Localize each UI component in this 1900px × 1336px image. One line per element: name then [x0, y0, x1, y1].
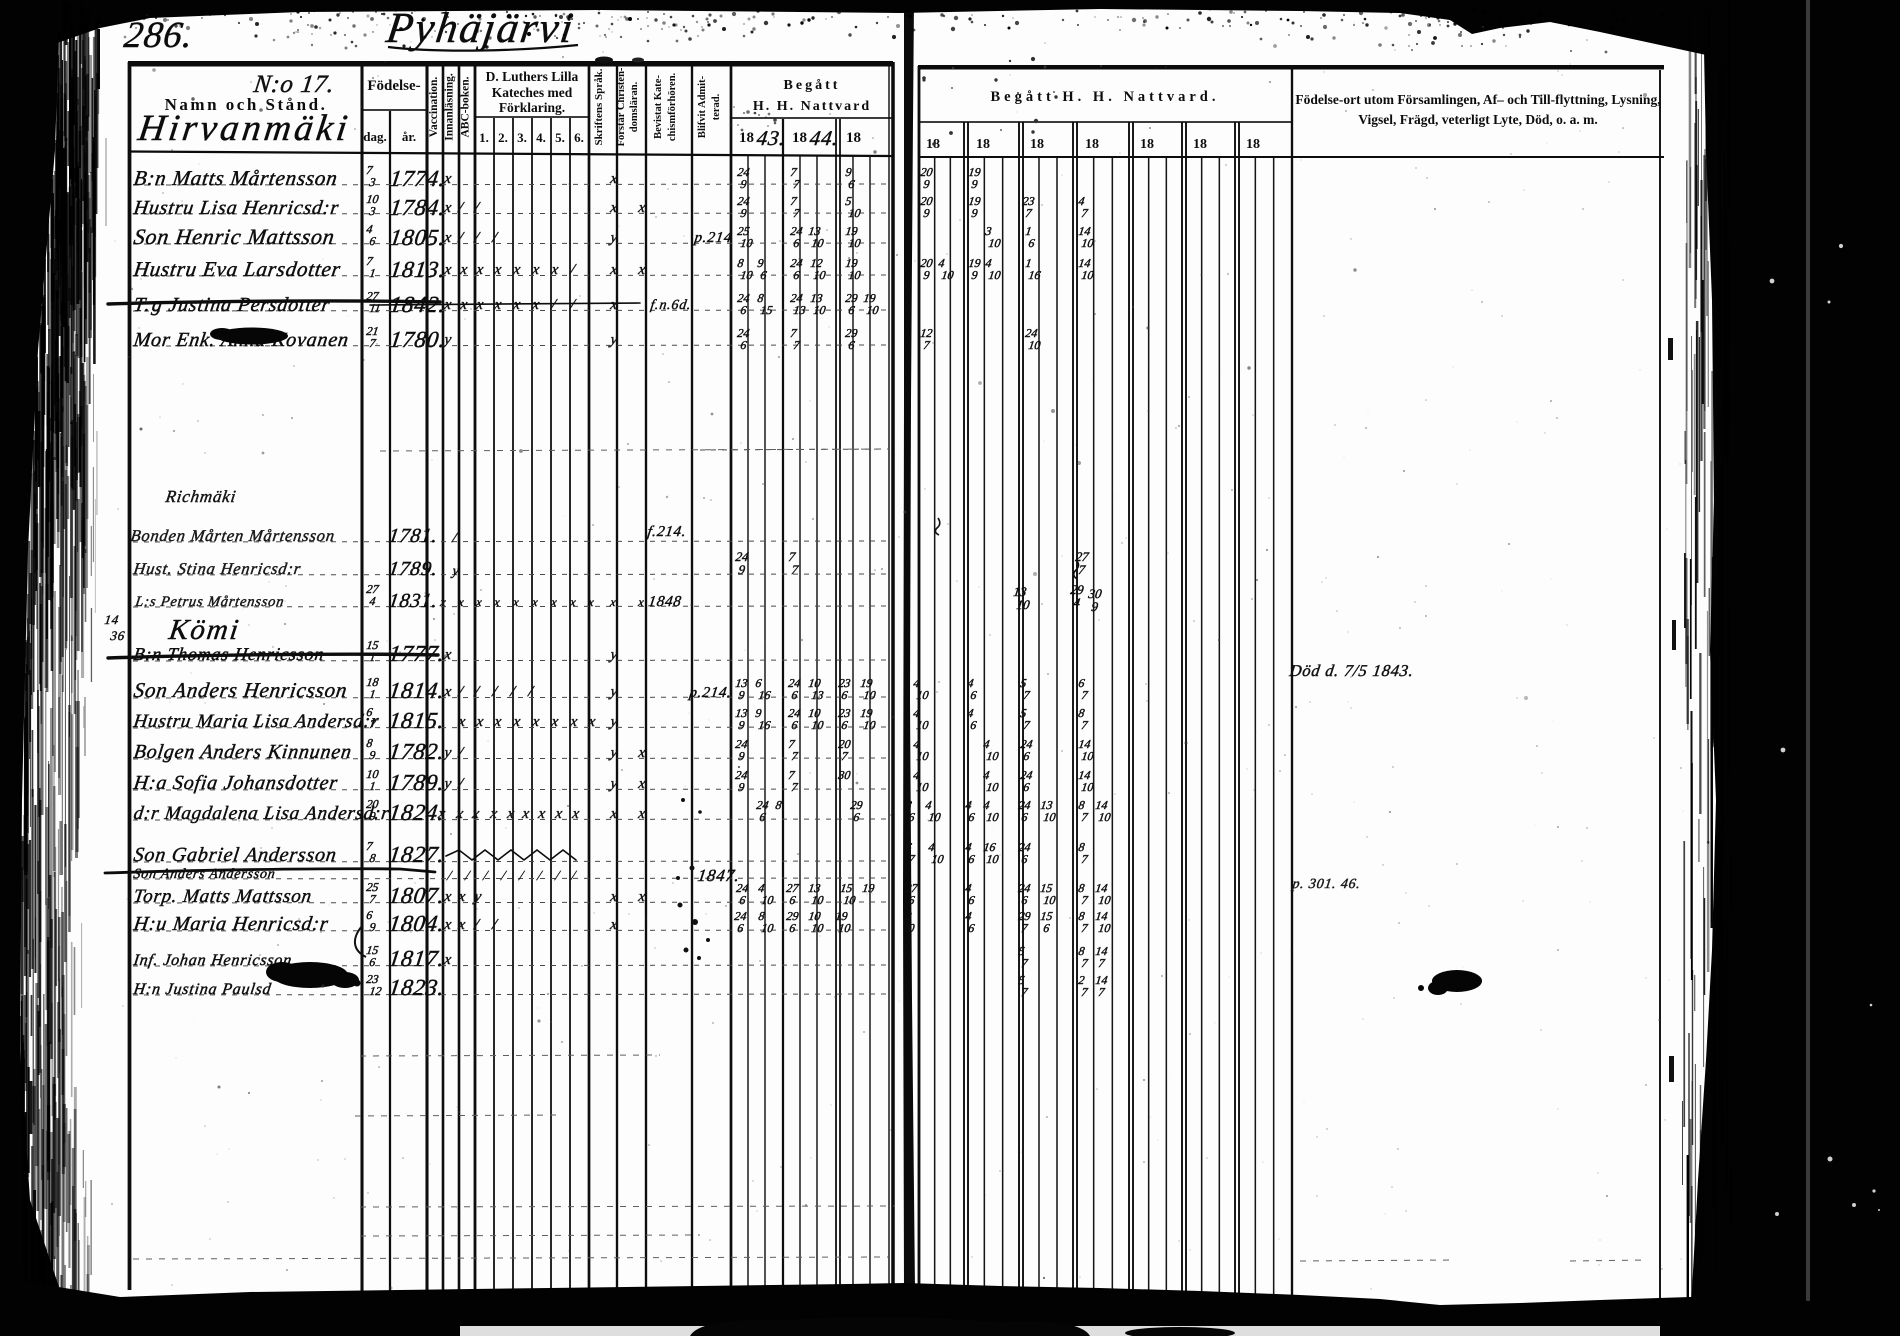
svg-text:10: 10	[941, 268, 955, 282]
svg-text:d:r Magdalena Lisa Andersd:r: d:r Magdalena Lisa Andersd:r	[132, 803, 391, 824]
svg-text:10: 10	[986, 852, 1000, 866]
svg-text:Bolgen Anders Kinnunen: Bolgen Anders Kinnunen	[132, 741, 353, 763]
svg-text:Hirvanmäki: Hirvanmäki	[135, 108, 353, 149]
svg-text:D. Luthers Lilla: D. Luthers Lilla	[486, 69, 579, 84]
svg-text:18: 18	[792, 130, 807, 146]
svg-text:H. H. Nattvard: H. H. Nattvard	[753, 99, 871, 114]
svg-text:18: 18	[976, 137, 990, 152]
svg-text:16: 16	[758, 688, 772, 702]
svg-text:1813.: 1813.	[388, 256, 447, 282]
svg-text:10: 10	[811, 893, 825, 907]
svg-text:10: 10	[928, 810, 942, 824]
svg-text:Skriftens Språk.: Skriftens Språk.	[593, 68, 605, 145]
svg-text:p.214.: p.214.	[687, 685, 733, 701]
svg-text:15: 15	[760, 303, 774, 317]
svg-text:f.214.: f.214.	[646, 524, 687, 540]
svg-text:10: 10	[931, 852, 945, 866]
svg-text:Hustru Maria Lisa Andersd:r: Hustru Maria Lisa Andersd:r	[131, 711, 380, 732]
svg-text:10: 10	[837, 921, 851, 935]
svg-text:H:n Justina Paulsd: H:n Justina Paulsd	[131, 981, 272, 998]
svg-text:16: 16	[758, 718, 772, 732]
svg-text:Kömi: Kömi	[166, 614, 242, 646]
svg-text:10: 10	[1028, 338, 1042, 352]
svg-text:19: 19	[862, 881, 876, 895]
svg-text:10: 10	[848, 206, 862, 220]
svg-text:10: 10	[810, 921, 824, 935]
svg-text:18: 18	[739, 130, 754, 146]
svg-text:4.: 4.	[536, 130, 546, 145]
svg-text:Bevistat Kate-: Bevistat Kate-	[653, 75, 664, 139]
svg-text:43.: 43.	[755, 126, 787, 150]
svg-text:18: 18	[846, 130, 861, 146]
svg-text:10: 10	[1081, 749, 1095, 763]
svg-text:14: 14	[104, 612, 121, 627]
svg-text:10: 10	[740, 268, 754, 282]
svg-text:Födelse-ort utom Församlingen,: Födelse-ort utom Församlingen, Af– och T…	[1295, 92, 1660, 107]
svg-text:11: 11	[369, 301, 382, 315]
svg-text:10: 10	[986, 749, 1000, 763]
svg-text:10: 10	[863, 688, 877, 702]
svg-text:16: 16	[1028, 268, 1042, 282]
svg-text:Son Anders Henricsson: Son Anders Henricsson	[132, 678, 349, 702]
svg-text:1815.: 1815.	[387, 707, 446, 733]
svg-text:10: 10	[843, 893, 857, 907]
svg-text:Hustru Lisa Henricsd:r: Hustru Lisa Henricsd:r	[131, 197, 340, 219]
svg-text:10: 10	[916, 688, 930, 702]
svg-text:1784.: 1784.	[388, 194, 447, 220]
svg-text:1817.: 1817.	[387, 945, 446, 971]
svg-text:10: 10	[1081, 236, 1095, 250]
svg-text:terad.: terad.	[711, 93, 722, 120]
svg-text:44.: 44.	[808, 126, 840, 150]
svg-text:18: 18	[1030, 137, 1044, 152]
svg-text:Richmäki: Richmäki	[163, 487, 237, 506]
svg-text:Vigsel, Frägd, veterligt Lyte,: Vigsel, Frägd, veterligt Lyte, Död, o. a…	[1358, 112, 1597, 127]
svg-text:1774.: 1774.	[388, 165, 447, 191]
svg-text:p.214: p.214	[692, 230, 733, 246]
svg-text:10: 10	[811, 236, 825, 250]
svg-text:H:u Maria Henricsd:r: H:u Maria Henricsd:r	[131, 913, 330, 935]
svg-text:10: 10	[1081, 780, 1095, 794]
svg-text:10: 10	[848, 268, 862, 282]
svg-text:10: 10	[813, 303, 827, 317]
svg-text:10: 10	[916, 749, 930, 763]
svg-text:10: 10	[1097, 921, 1111, 935]
svg-text:18: 18	[1085, 137, 1099, 152]
svg-text:Kateches med: Kateches med	[492, 85, 573, 100]
svg-text:10: 10	[1016, 597, 1032, 612]
svg-text:år.: år.	[402, 129, 416, 144]
svg-text:p. 301. 46.: p. 301. 46.	[1290, 876, 1361, 892]
svg-text:10: 10	[1098, 893, 1112, 907]
svg-text:10: 10	[866, 303, 880, 317]
svg-text:10: 10	[863, 718, 877, 732]
svg-text:1847.: 1847.	[696, 866, 741, 885]
svg-text:1831.: 1831.	[387, 590, 439, 612]
svg-text:10: 10	[813, 268, 827, 282]
svg-text:f.n.6d.: f.n.6d.	[649, 297, 692, 313]
svg-text:1848: 1848	[647, 594, 682, 610]
svg-text:1782.: 1782.	[387, 738, 446, 764]
svg-text:10: 10	[916, 780, 930, 794]
svg-text:1814.: 1814.	[387, 677, 446, 703]
svg-text:10: 10	[761, 893, 775, 907]
svg-text:Begått H. H. Nattvard.: Begått H. H. Nattvard.	[991, 89, 1220, 105]
svg-text:1.: 1.	[479, 130, 489, 145]
svg-text:1789.: 1789.	[387, 769, 446, 795]
svg-text:Vaccination.: Vaccination.	[428, 77, 440, 138]
svg-text:H:a Sofia Johansdotter: H:a Sofia Johansdotter	[131, 772, 339, 794]
svg-text:Torp. Matts Mattsson: Torp. Matts Mattsson	[132, 886, 313, 907]
svg-text:10: 10	[1081, 268, 1095, 282]
svg-text:12: 12	[369, 984, 383, 998]
svg-text:Innanläsning.: Innanläsning.	[444, 73, 456, 141]
svg-text:Födelse-: Födelse-	[367, 78, 420, 94]
svg-text:chismförhören.: chismförhören.	[667, 72, 678, 141]
svg-text:10: 10	[916, 718, 930, 732]
svg-text:1780.: 1780.	[388, 326, 447, 352]
svg-text:Hustru Eva Larsdotter: Hustru Eva Larsdotter	[131, 257, 342, 281]
svg-text:ABC-boken.: ABC-boken.	[460, 76, 472, 137]
svg-text:30: 30	[837, 768, 852, 782]
svg-text:10: 10	[1043, 810, 1057, 824]
svg-text:36: 36	[109, 628, 127, 643]
svg-text:10: 10	[1098, 810, 1112, 824]
svg-text:T:g Justina Persdotter: T:g Justina Persdotter	[132, 294, 331, 316]
svg-text:10: 10	[740, 236, 754, 250]
svg-text:1789.: 1789.	[387, 558, 439, 580]
svg-text:10: 10	[986, 810, 1000, 824]
svg-text:1823.: 1823.	[387, 974, 446, 1000]
svg-text:dag.: dag.	[363, 129, 386, 144]
svg-text:6.: 6.	[574, 130, 584, 145]
svg-text:Förstår Christen-: Förstår Christen-	[616, 67, 627, 146]
svg-text:1805.: 1805.	[388, 224, 447, 250]
svg-text:Hust. Stina Henricsd:r: Hust. Stina Henricsd:r	[131, 559, 302, 578]
svg-text:10: 10	[988, 268, 1002, 282]
svg-text:Son Henric Mattsson: Son Henric Mattsson	[132, 224, 336, 249]
svg-text:1807.: 1807.	[387, 882, 446, 908]
svg-text:domsläran.: domsläran.	[629, 81, 640, 132]
svg-text:10: 10	[760, 921, 774, 935]
svg-text:18: 18	[1140, 137, 1154, 152]
svg-text:10: 10	[986, 780, 1000, 794]
svg-text:Pyhäjärvi: Pyhäjärvi	[383, 4, 578, 52]
svg-text:13: 13	[811, 688, 825, 702]
svg-text:Förklaring.: Förklaring.	[499, 100, 565, 115]
svg-text:Son Gabriel Andersson: Son Gabriel Andersson	[132, 844, 338, 866]
svg-text:Begått: Begått	[784, 78, 841, 93]
svg-text:13: 13	[793, 303, 807, 317]
svg-text:10: 10	[988, 236, 1002, 250]
svg-text:1804.: 1804.	[387, 910, 446, 936]
svg-text:N:o 17.: N:o 17.	[251, 71, 336, 98]
svg-text:Bonden Mårten Mårtensson: Bonden Mårten Mårtensson	[129, 526, 336, 545]
svg-text:3.: 3.	[517, 130, 527, 145]
svg-text:1827.: 1827.	[387, 841, 446, 867]
svg-text:18: 18	[1193, 137, 1207, 152]
svg-text:2.: 2.	[498, 130, 508, 145]
svg-text:10: 10	[811, 718, 825, 732]
svg-text:1781.: 1781.	[387, 525, 439, 547]
svg-text:10: 10	[1043, 893, 1057, 907]
svg-text:10: 10	[848, 236, 862, 250]
svg-text:L:s Petrus Mårtensson: L:s Petrus Mårtensson	[133, 594, 285, 610]
svg-text:B:n Matts Mårtensson: B:n Matts Mårtensson	[132, 166, 339, 190]
svg-text:5.: 5.	[555, 130, 565, 145]
svg-text:18: 18	[1246, 137, 1260, 152]
svg-text:Blifvit Admit-: Blifvit Admit-	[697, 75, 708, 138]
